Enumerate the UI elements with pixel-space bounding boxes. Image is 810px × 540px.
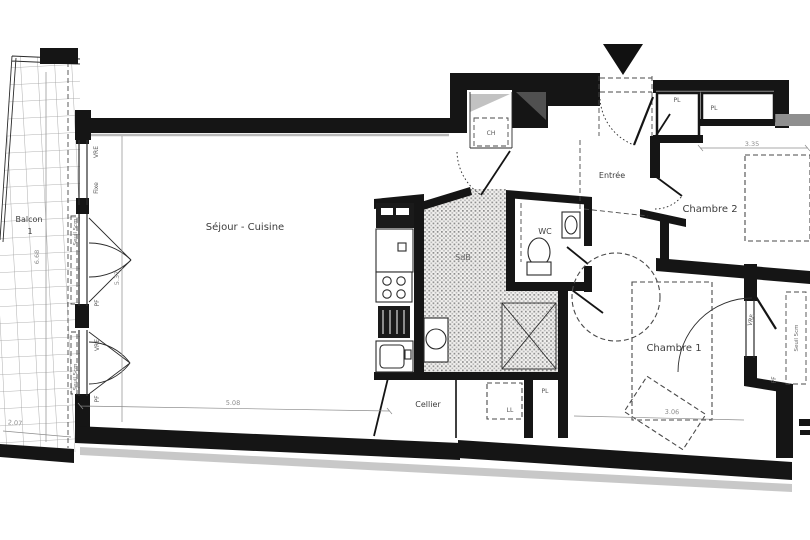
stove-fixture bbox=[376, 272, 412, 302]
faucet bbox=[405, 350, 411, 359]
washing-machine-label: LL bbox=[507, 407, 514, 414]
door-swing-chambre2 bbox=[655, 196, 682, 209]
window-label-fixe: Fixe bbox=[93, 182, 100, 194]
room-label-sdb: SdB bbox=[455, 253, 471, 262]
dimension-balcon-width: 2.07 bbox=[7, 418, 22, 427]
door-leaf-sdb bbox=[481, 151, 510, 195]
door-leaf-chambre1-window bbox=[756, 297, 776, 329]
window-label-pf-top: PF bbox=[94, 299, 101, 307]
door-swing-chambre1-window bbox=[678, 298, 752, 372]
wc-room bbox=[521, 203, 580, 275]
water-heater-label: CH bbox=[487, 130, 496, 137]
door-leaf-wc bbox=[567, 247, 588, 264]
dimension-chambre2-width: 3.35 bbox=[745, 140, 759, 148]
closet-label-pl-top-right: PL bbox=[711, 105, 719, 112]
room-label-cellier: Cellier bbox=[415, 400, 441, 409]
furniture bbox=[572, 155, 810, 450]
dimension-sejour-width: 5.08 bbox=[226, 399, 241, 407]
floor-plan-page: CH bbox=[0, 0, 810, 540]
room-label-balcon: Balcon bbox=[16, 215, 43, 224]
room-label-chambre2: Chambre 2 bbox=[682, 204, 737, 215]
entrance-threshold bbox=[599, 76, 652, 136]
turning-circle bbox=[572, 253, 660, 341]
sink-basin bbox=[380, 345, 404, 368]
cellier-room: LL bbox=[456, 380, 522, 438]
closet-label-pl-top-left: PL bbox=[674, 97, 682, 104]
wc-basin bbox=[565, 216, 577, 234]
bed-outline-chambre2 bbox=[745, 155, 810, 241]
washbasin-fixture bbox=[426, 329, 446, 349]
counter bbox=[376, 229, 413, 272]
room-label-wc: WC bbox=[538, 227, 552, 236]
floor-plan: CH bbox=[0, 0, 810, 540]
door-swing-entrance bbox=[600, 99, 634, 145]
entrance bbox=[580, 44, 653, 216]
dimension-chambre1-width: 3.06 bbox=[665, 408, 680, 417]
door-leaf-cellier bbox=[374, 378, 388, 436]
balcony-top-wall bbox=[40, 48, 78, 64]
right-window bbox=[678, 292, 806, 384]
room-number-balcon: 1 bbox=[27, 227, 32, 236]
window-label-vre-bottom: VRE bbox=[94, 339, 101, 351]
room-label-entree: Entrée bbox=[599, 170, 625, 180]
dimension-balcon-height: 6.68 bbox=[33, 250, 41, 264]
outlet-symbol bbox=[398, 243, 406, 251]
entrance-arrow-icon bbox=[603, 44, 643, 75]
wall-notch bbox=[457, 430, 469, 440]
threshold-label-left-bottom: Seuil 5cm bbox=[73, 363, 79, 390]
window-label-vre-right: VRE bbox=[747, 313, 757, 327]
toilet-tank bbox=[527, 262, 551, 275]
fridge-cabinet bbox=[376, 203, 414, 228]
threshold-label-left-top: Seuil 5cm bbox=[73, 218, 79, 245]
washing-machine-box bbox=[487, 383, 522, 419]
room-label-chambre1: Chambre 1 bbox=[646, 343, 701, 354]
window-label-pf-bottom: PF bbox=[94, 395, 101, 403]
door-leaf-chambre2 bbox=[655, 176, 682, 196]
dimension-sejour-height: 5.37 bbox=[113, 271, 121, 285]
window-label-pf-right: PF bbox=[771, 376, 778, 384]
room-label-sejour: Séjour - Cuisine bbox=[206, 221, 284, 233]
threshold-label-right: Seuil 5cm bbox=[794, 324, 800, 351]
window-label-vre-top: VRE bbox=[93, 146, 100, 158]
closet-label-pl-hall: PL bbox=[542, 388, 550, 395]
kitchen bbox=[376, 203, 414, 372]
